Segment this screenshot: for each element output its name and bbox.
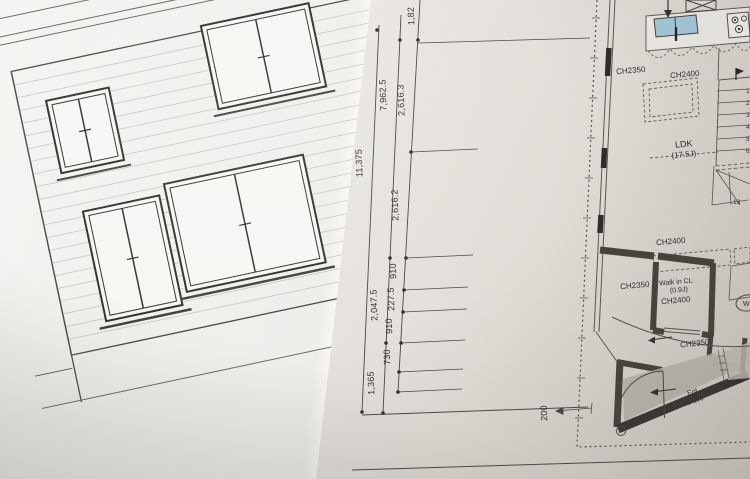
washer-icon: W: [729, 263, 750, 312]
window-wide-upper: [195, 1, 335, 116]
dim-total: 11,375: [354, 149, 365, 177]
kitchen: [646, 0, 750, 58]
photo-of-blueprints: 11,375 7,962.5 2,047.5 1,365 1,82 2,616.…: [0, 0, 750, 479]
shoes-label: Shoes: [722, 377, 744, 390]
ch-hall-label: CH2350: [680, 337, 711, 349]
dim-inner-6: 730: [382, 349, 393, 365]
ch-ldk-label: CH2400: [656, 236, 687, 248]
dim-setback: 200: [539, 405, 550, 421]
washer-label: W: [743, 301, 750, 308]
first-floor-line: [0, 368, 72, 385]
dim-mid-1: 2,047.5: [368, 289, 379, 321]
ldk-label: LDK: [675, 138, 693, 149]
stair-number: 1: [746, 88, 750, 95]
first-floor-label: 1階FL: [0, 360, 26, 380]
dim-inner-2: 2,616.2: [389, 189, 400, 221]
dim-inner-4: 227.5: [386, 287, 397, 311]
dim-inner-3: 910: [388, 263, 399, 279]
dim-inner-5: 910: [384, 318, 395, 334]
setback-dimension-line: [556, 403, 592, 414]
stair-number: 3: [746, 112, 750, 119]
ch-upper-left-label: CH2350: [616, 65, 647, 77]
stair-direction-flag-icon: [736, 68, 744, 75]
window-small-upper: [40, 86, 131, 180]
west-wall: [594, 0, 618, 363]
dimension-labels: 11,375 7,962.5 2,047.5 1,365 1,82 2,616.…: [354, 7, 550, 421]
ground-level-label: ▽GL: [0, 399, 23, 416]
ch-mid-left-label: CH2350: [620, 280, 651, 292]
stair-number: 4: [746, 124, 750, 131]
wic-sliding-door: [664, 328, 700, 335]
wic-size-label: (0.9J): [670, 286, 688, 295]
dim-mid-0: 7,962.5: [377, 79, 388, 111]
hall-arrow-icon: [648, 337, 672, 344]
stairs: 1 2 3 4 5 6 13: [712, 48, 750, 206]
dim-inner-0: 1,82: [406, 7, 417, 26]
stair-number: 2: [746, 100, 750, 107]
shoes-area-tile: [722, 342, 750, 380]
stair-number: 6: [746, 148, 750, 155]
dim-inner-1: 2,616.3: [395, 84, 406, 116]
stair-winders: [712, 166, 750, 205]
dim-mid-2: 1,365: [366, 371, 377, 395]
stair-number: 5: [746, 136, 750, 143]
range-hood-icon: [686, 0, 716, 12]
stair-numbers: 1 2 3 4 5 6 13: [733, 88, 750, 206]
window-large-lower-right: [156, 153, 335, 299]
wic-label: Walk in CL: [659, 278, 693, 288]
ch-wic-label: CH2400: [661, 295, 692, 307]
ldk-size-label: (17.5J): [671, 149, 697, 160]
stair-number: 13: [733, 199, 741, 206]
